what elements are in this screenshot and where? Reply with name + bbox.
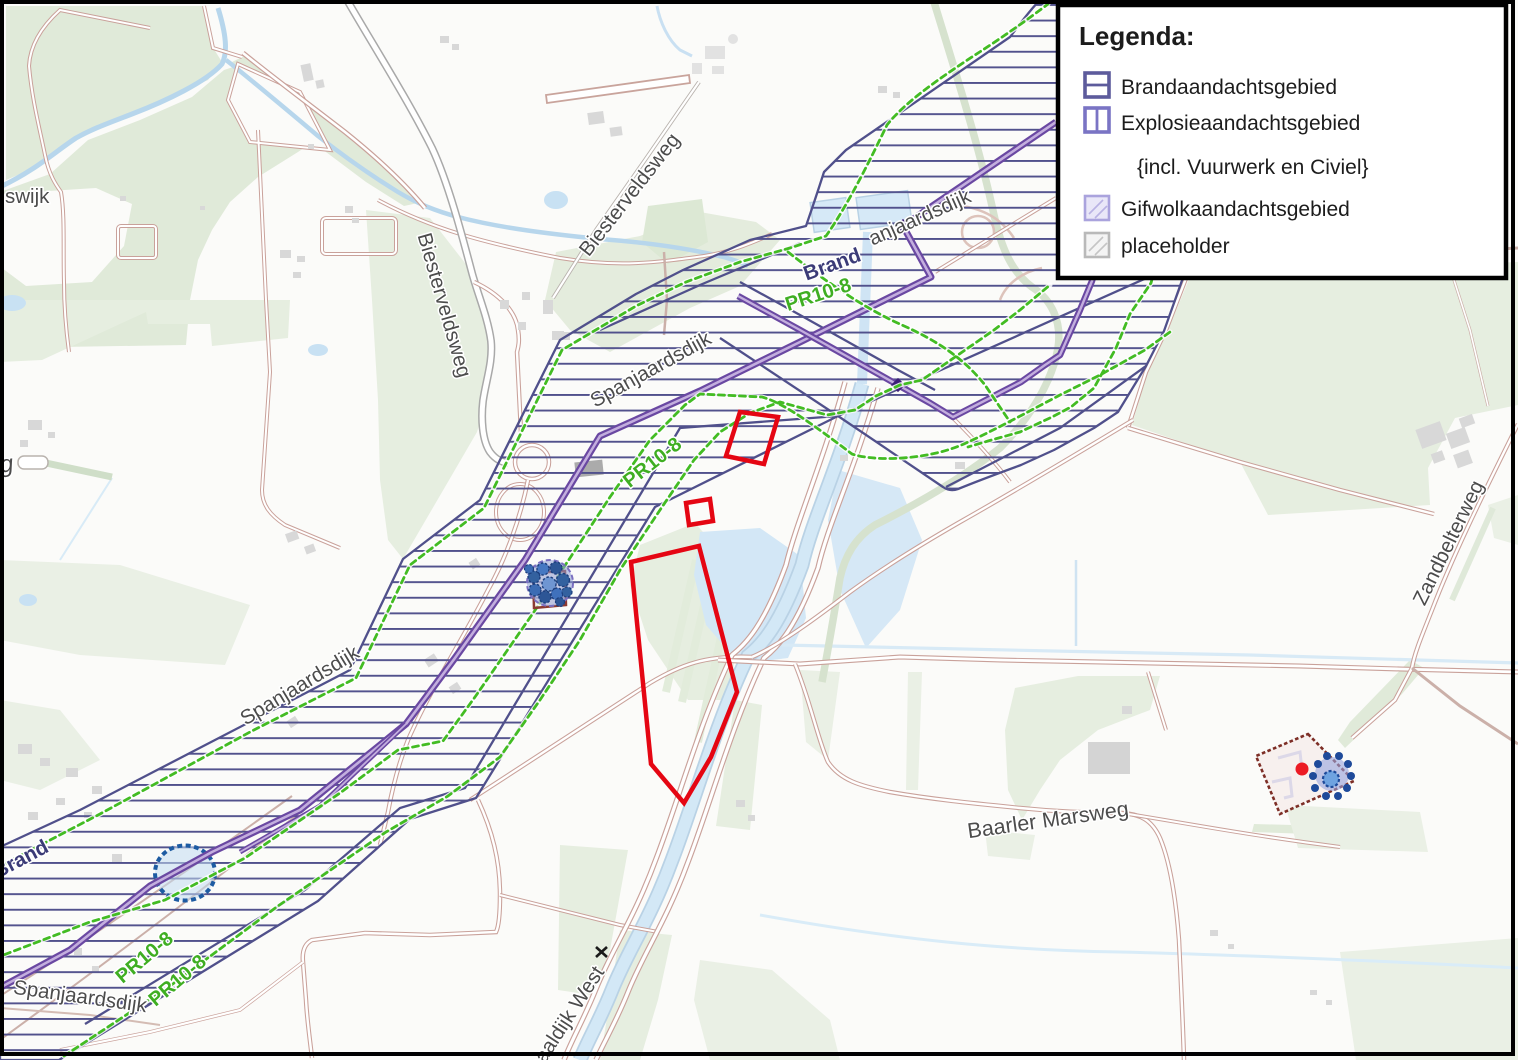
svg-text:Gifwolkaandachtsgebied: Gifwolkaandachtsgebied (1121, 198, 1350, 221)
svg-text:{incl. Vuurwerk en Civiel}: {incl. Vuurwerk en Civiel} (1137, 156, 1369, 179)
svg-text:Brandaandachtsgebied: Brandaandachtsgebied (1121, 76, 1337, 99)
svg-text:Legenda:: Legenda: (1079, 21, 1195, 51)
svg-text:swijk: swijk (5, 185, 50, 208)
svg-text:placeholder: placeholder (1121, 235, 1230, 258)
svg-text:Explosieaandachtsgebied: Explosieaandachtsgebied (1121, 112, 1360, 135)
